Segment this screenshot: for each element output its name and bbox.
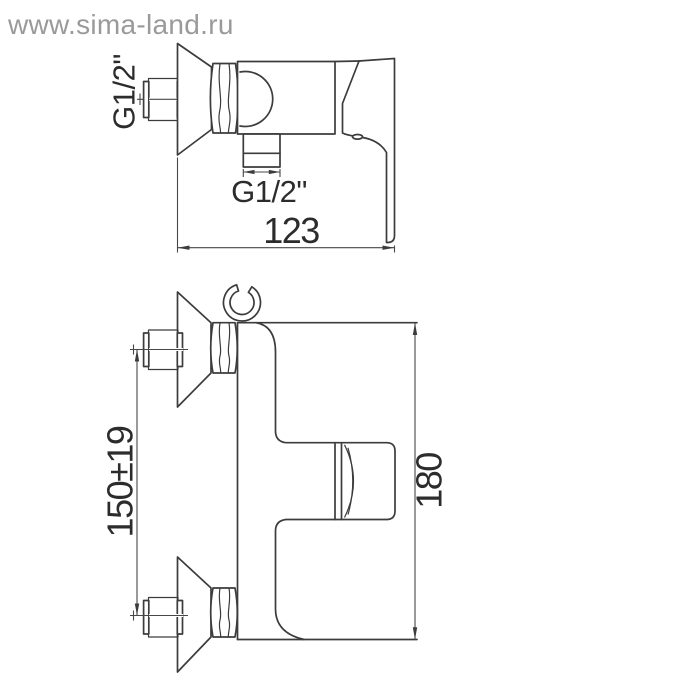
handle-side <box>343 59 395 243</box>
front-view: 150±19 180 <box>100 285 450 672</box>
shower-hook <box>224 285 261 321</box>
width-dimension-label: 123 <box>263 210 319 251</box>
handle-front <box>335 443 395 520</box>
body-profile-lower <box>276 520 336 640</box>
body-profile-upper <box>256 323 335 443</box>
shower-outlet-spout <box>243 134 280 167</box>
mounting-nut <box>210 64 238 134</box>
mounting-nut-top <box>211 323 238 373</box>
technical-drawing-page: www.sima-land.ru <box>0 0 700 700</box>
wall-flange <box>178 44 212 156</box>
mixer-drawing: G1/2" G1/2" 123 <box>0 0 700 700</box>
side-view: G1/2" G1/2" 123 <box>107 44 395 253</box>
set-screw <box>353 135 363 140</box>
inlet-spacing-dimension-label: 150±19 <box>100 426 141 537</box>
outlet-thread-label: G1/2" <box>231 174 307 209</box>
height-dimension-label: 180 <box>409 453 450 509</box>
inlet-thread-top <box>130 330 188 370</box>
inlet-thread-bottom <box>130 598 188 638</box>
inlet-thread-label: G1/2" <box>107 54 142 130</box>
mounting-nut-bottom <box>211 588 238 637</box>
